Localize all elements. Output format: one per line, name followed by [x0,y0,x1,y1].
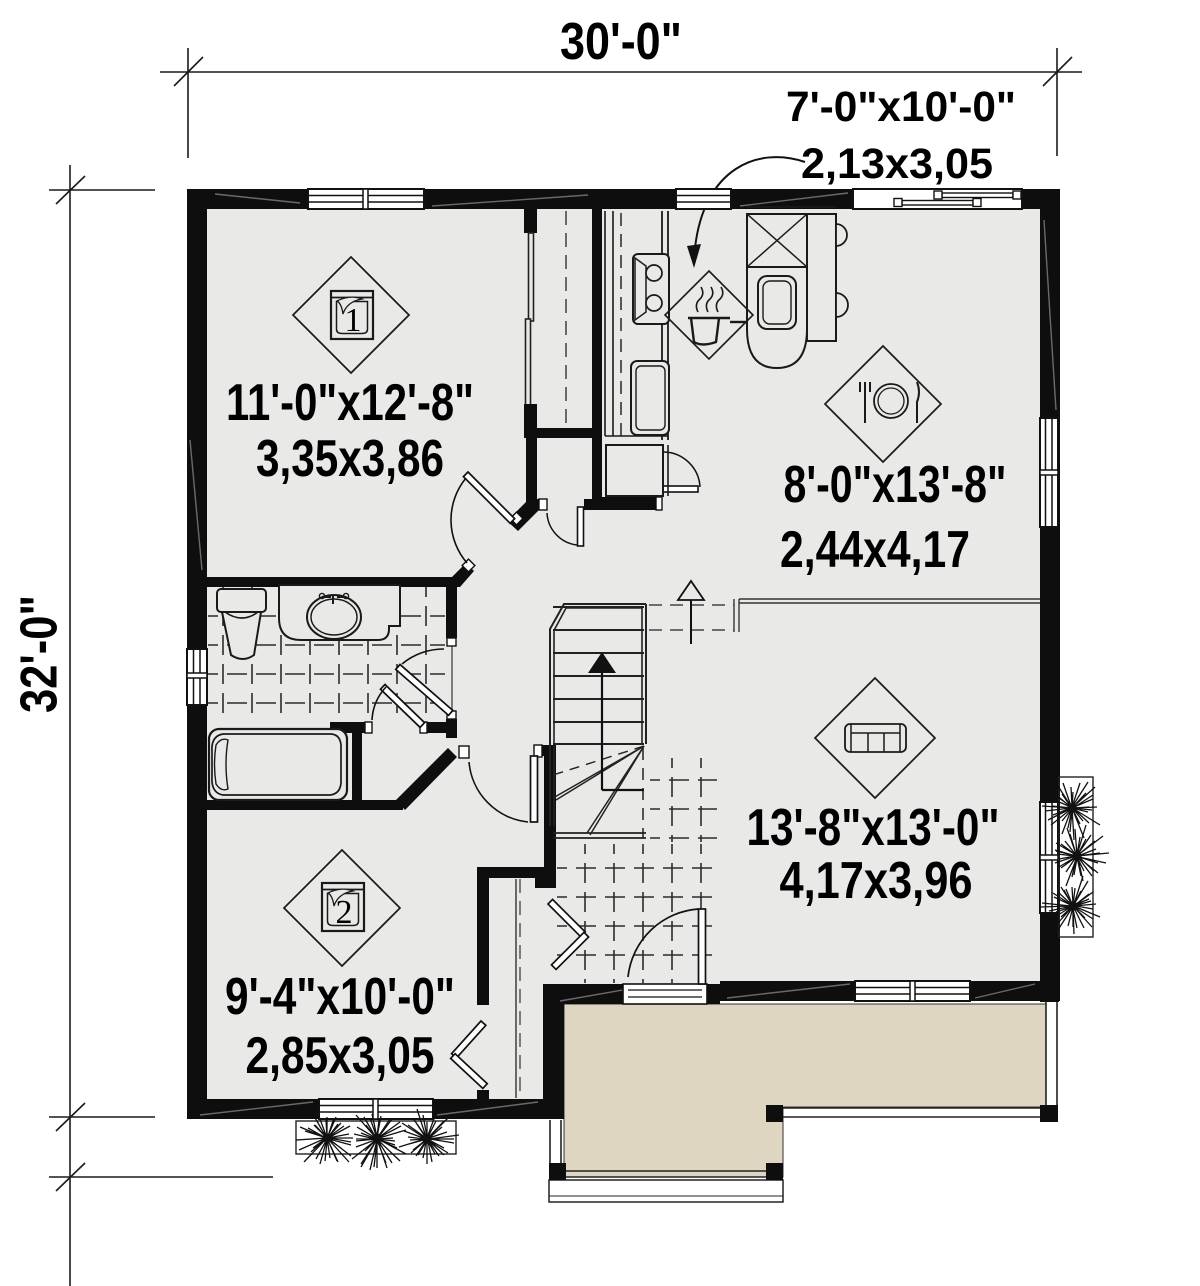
svg-text:7'-0"x10'-0": 7'-0"x10'-0" [786,83,1016,131]
svg-text:4,17x3,96: 4,17x3,96 [780,852,973,910]
svg-text:9'-4"x10'-0": 9'-4"x10'-0" [225,968,455,1026]
svg-text:32'-0": 32'-0" [11,595,69,713]
svg-text:1: 1 [345,302,362,339]
svg-text:13'-8"x13'-0": 13'-8"x13'-0" [747,799,1000,857]
svg-text:2,44x4,17: 2,44x4,17 [780,521,970,579]
svg-text:2,85x3,05: 2,85x3,05 [246,1027,435,1085]
svg-text:2,13x3,05: 2,13x3,05 [801,140,993,188]
svg-text:30'-0": 30'-0" [560,13,682,71]
svg-text:11'-0"x12'-8": 11'-0"x12'-8" [226,374,474,432]
svg-text:2: 2 [336,894,353,931]
svg-text:8'-0"x13'-8": 8'-0"x13'-8" [784,456,1007,514]
svg-text:3,35x3,86: 3,35x3,86 [256,430,444,488]
